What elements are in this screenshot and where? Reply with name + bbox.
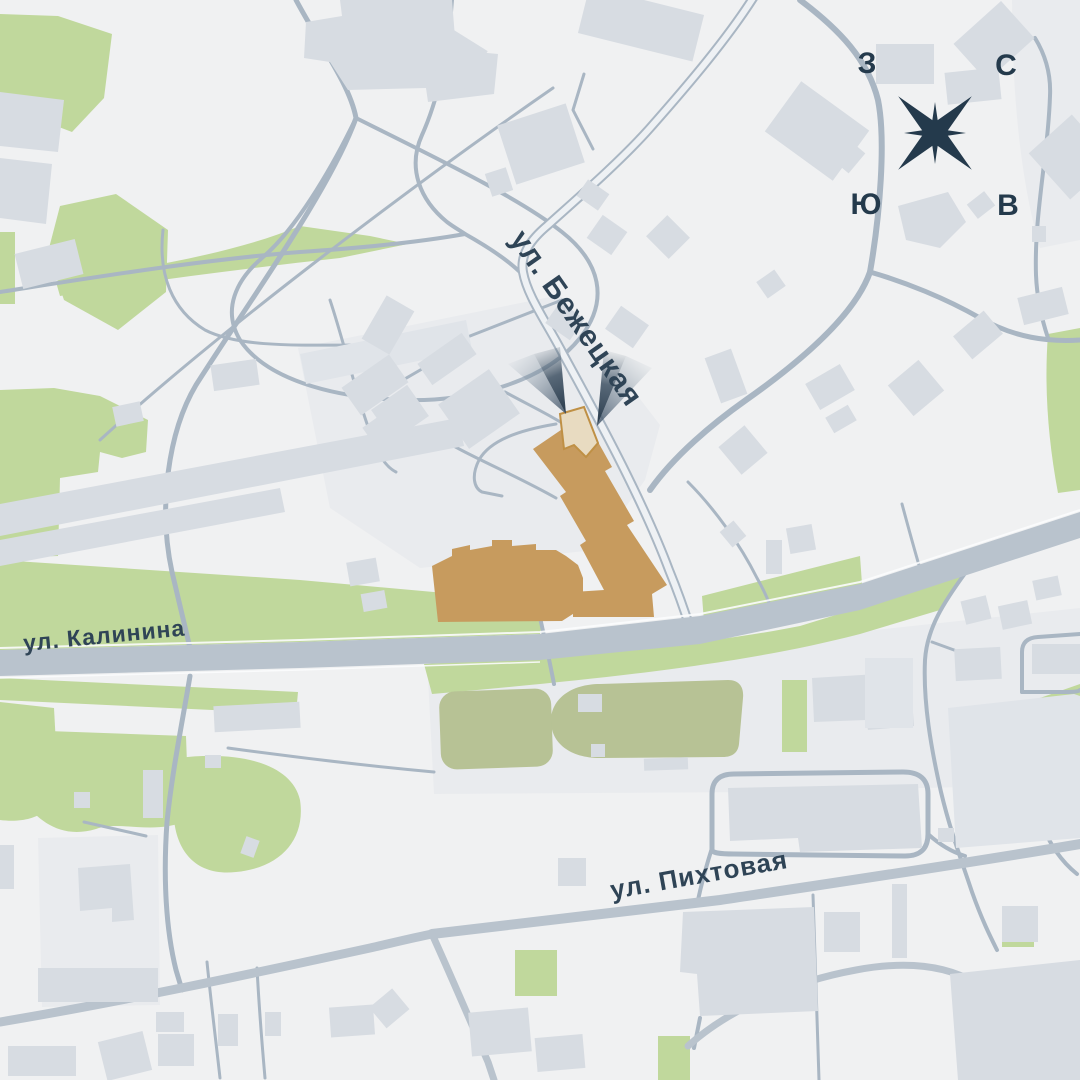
- building: [143, 770, 163, 818]
- green-area: [515, 950, 557, 996]
- building: [158, 1034, 194, 1066]
- building: [948, 694, 1080, 848]
- building: [346, 558, 380, 587]
- green-area: [20, 730, 189, 832]
- compass-south-label: Ю: [851, 188, 882, 221]
- building: [1002, 906, 1038, 942]
- building: [578, 694, 602, 712]
- stadium-field: [551, 680, 743, 758]
- building: [950, 960, 1080, 1080]
- building: [938, 828, 954, 842]
- building: [213, 702, 300, 732]
- building: [38, 968, 158, 1002]
- sports-fields: [439, 680, 743, 770]
- sports-field: [439, 688, 554, 770]
- building: [865, 658, 913, 728]
- compass-west-label: З: [858, 47, 877, 80]
- building: [205, 755, 221, 768]
- building: [680, 907, 818, 1016]
- building: [74, 792, 90, 808]
- green-area: [782, 680, 807, 752]
- compass-east-label: В: [997, 189, 1019, 222]
- compass-north-label: С: [995, 49, 1017, 82]
- building: [0, 92, 64, 152]
- building: [0, 158, 52, 224]
- building: [468, 1007, 532, 1056]
- building: [535, 1034, 586, 1072]
- building: [329, 1005, 375, 1038]
- building: [0, 845, 14, 889]
- building: [892, 884, 907, 958]
- building: [644, 757, 688, 771]
- building: [1032, 226, 1046, 242]
- building: [8, 1046, 76, 1076]
- building: [156, 1012, 184, 1032]
- map-canvas[interactable]: ул. Бежецкая ул. Калинина ул. Пихтовая З…: [0, 0, 1080, 1080]
- building: [218, 1014, 238, 1046]
- building: [766, 540, 782, 574]
- green-area: [658, 1036, 690, 1080]
- building: [786, 524, 816, 554]
- building: [824, 912, 860, 952]
- road-loop: [1022, 690, 1080, 692]
- building: [265, 1012, 281, 1036]
- building: [954, 647, 1002, 681]
- building: [558, 858, 586, 886]
- building: [591, 744, 605, 757]
- building: [1032, 644, 1080, 674]
- building: [876, 44, 934, 84]
